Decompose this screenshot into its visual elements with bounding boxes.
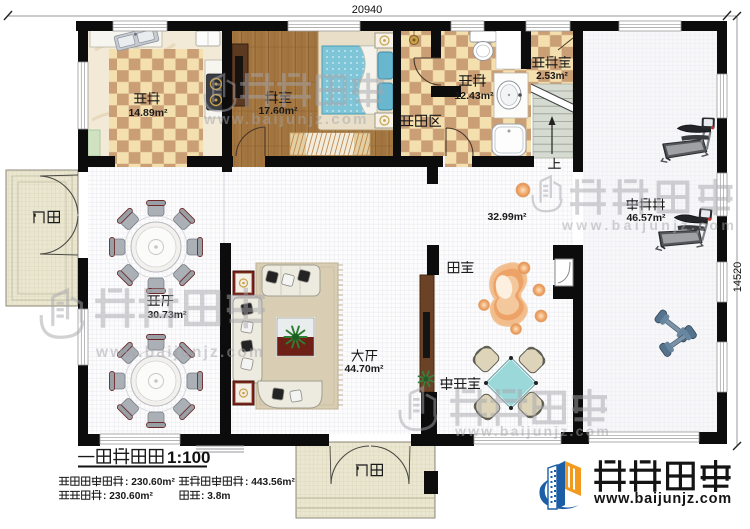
svg-text:12.43m²: 12.43m² bbox=[454, 90, 494, 102]
svg-text:www.baijunjz.com: www.baijunjz.com bbox=[95, 344, 265, 361]
svg-text:: 230.60m²: : 230.60m² bbox=[125, 477, 175, 488]
svg-text:www.baijunjz.com: www.baijunjz.com bbox=[454, 423, 611, 439]
svg-text:www.baijunjz.com: www.baijunjz.com bbox=[593, 491, 732, 507]
svg-text:: 443.56m²: : 443.56m² bbox=[245, 477, 295, 488]
svg-text:14520: 14520 bbox=[732, 262, 744, 293]
svg-text:www.baijunjz.com: www.baijunjz.com bbox=[203, 111, 369, 128]
svg-text:14.89m²: 14.89m² bbox=[128, 107, 168, 119]
svg-text:www.baijunjz.com: www.baijunjz.com bbox=[561, 217, 737, 233]
svg-text:20940: 20940 bbox=[352, 4, 383, 16]
svg-text:44.70m²: 44.70m² bbox=[344, 363, 384, 375]
svg-text:2.53m²: 2.53m² bbox=[536, 71, 568, 82]
svg-text:: 3.8m: : 3.8m bbox=[201, 491, 230, 502]
svg-text:1:100: 1:100 bbox=[167, 448, 210, 467]
svg-text:32.99m²: 32.99m² bbox=[487, 211, 527, 223]
svg-text:: 230.60m²: : 230.60m² bbox=[103, 491, 153, 502]
